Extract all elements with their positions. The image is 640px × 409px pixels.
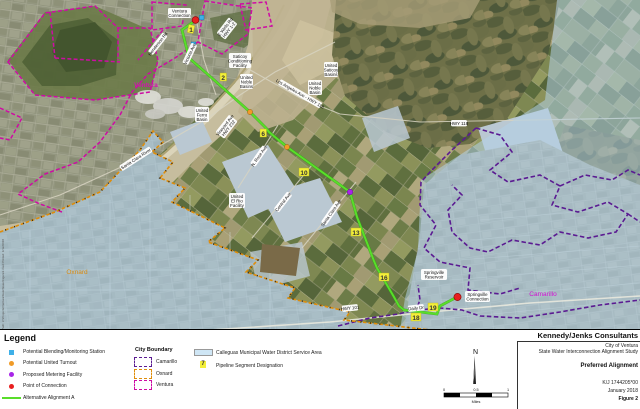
svg-text:0.5: 0.5 — [473, 388, 478, 392]
svg-text:2: 2 — [221, 75, 225, 82]
svg-text:13: 13 — [352, 230, 360, 237]
svg-text:19: 19 — [429, 305, 437, 312]
svg-text:10: 10 — [300, 170, 308, 177]
svg-text:Connection: Connection — [168, 13, 191, 18]
svg-text:Facility: Facility — [230, 203, 244, 208]
svg-text:Camarillo: Camarillo — [529, 291, 557, 298]
svg-text:0: 0 — [443, 388, 445, 392]
svg-text:1: 1 — [189, 27, 193, 34]
svg-text:Connection: Connection — [466, 296, 489, 301]
svg-text:6: 6 — [261, 131, 265, 138]
svg-text:Ventura: Ventura — [134, 82, 158, 89]
svg-text:Reservoir: Reservoir — [425, 274, 444, 279]
svg-text:Basins: Basins — [240, 84, 254, 89]
svg-text:16: 16 — [380, 275, 388, 282]
svg-text:Path: Z:\Projects\VenturaState: Path: Z:\Projects\VenturaStateWater\Figu… — [1, 239, 5, 330]
svg-text:N: N — [473, 349, 478, 356]
svg-text:Facility: Facility — [233, 63, 247, 68]
svg-text:18: 18 — [412, 315, 420, 322]
svg-text:HWY 118: HWY 118 — [450, 121, 469, 126]
svg-text:Miles: Miles — [472, 400, 481, 404]
svg-text:Basins: Basins — [324, 72, 338, 77]
svg-text:Basin: Basin — [310, 90, 322, 95]
svg-text:Oxnard: Oxnard — [66, 269, 88, 276]
svg-text:Basin: Basin — [197, 117, 209, 122]
svg-text:1: 1 — [507, 388, 509, 392]
